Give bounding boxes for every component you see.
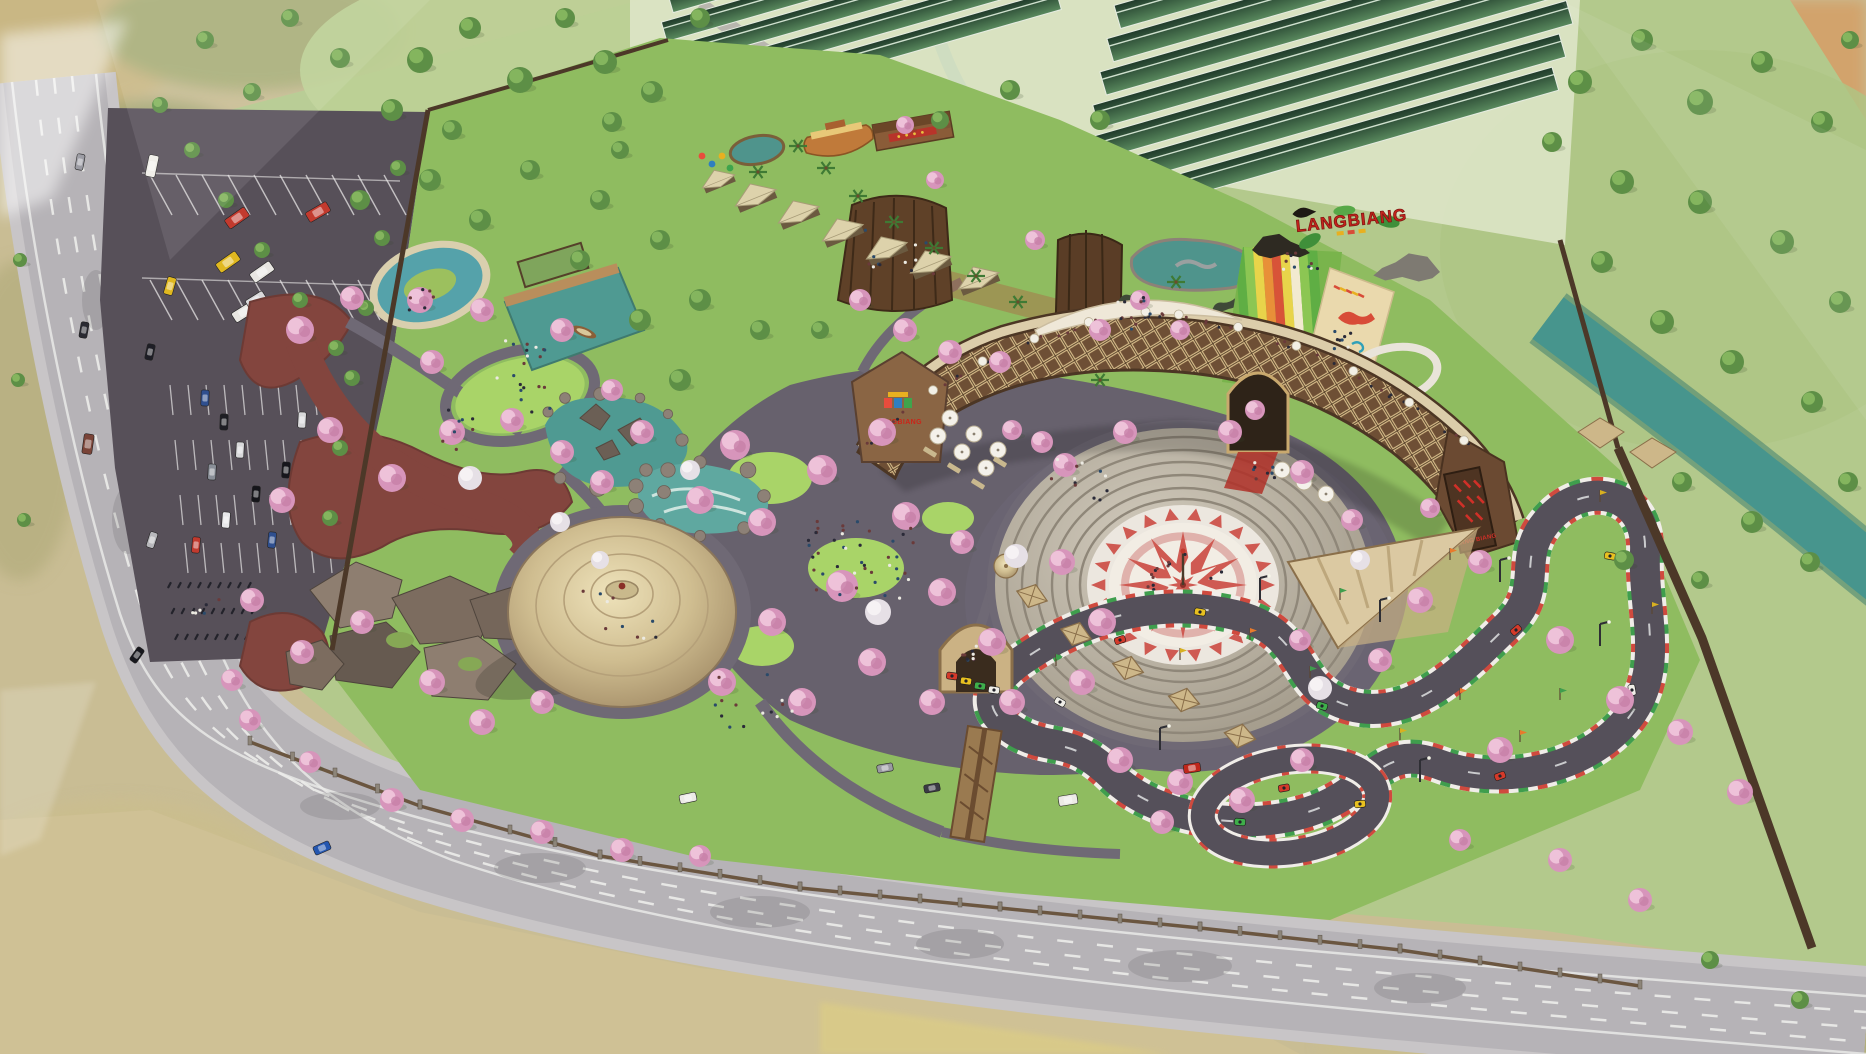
parked-car xyxy=(281,462,290,479)
white-umbrella xyxy=(942,410,958,426)
go-kart xyxy=(1354,800,1366,808)
parked-car xyxy=(251,486,260,503)
scene: LANGBIANG LANGBIANG LANG BIANG xyxy=(0,0,1866,1054)
parked-car xyxy=(236,442,245,458)
go-kart xyxy=(988,686,1000,694)
white-umbrella xyxy=(1318,486,1334,502)
parked-car xyxy=(220,414,229,430)
white-blossom-tree xyxy=(550,512,570,532)
thatch-roof xyxy=(508,517,736,707)
parked-car xyxy=(191,537,200,554)
go-kart xyxy=(1278,784,1290,793)
white-blossom-tree xyxy=(458,466,482,490)
go-kart xyxy=(1194,608,1206,617)
park-aerial-rendering: LANGBIANG LANGBIANG LANG BIANG xyxy=(0,0,1866,1054)
parked-car xyxy=(208,464,217,480)
go-kart xyxy=(1234,818,1246,826)
white-umbrella xyxy=(930,428,946,444)
parked-car xyxy=(221,512,230,529)
white-blossom-tree xyxy=(591,551,609,569)
go-kart xyxy=(960,677,972,685)
go-kart xyxy=(974,682,986,690)
roof-finial xyxy=(619,583,626,590)
white-blossom-tree xyxy=(1308,676,1332,700)
white-blossom-tree xyxy=(1004,544,1028,568)
go-kart xyxy=(946,672,958,680)
parked-car xyxy=(267,532,276,549)
white-umbrella xyxy=(966,426,982,442)
white-blossom-tree xyxy=(1350,550,1370,570)
white-blossom-tree xyxy=(680,460,700,480)
white-umbrella xyxy=(978,460,994,476)
white-umbrella xyxy=(1274,462,1290,478)
white-umbrella xyxy=(990,442,1006,458)
parked-car xyxy=(201,390,210,406)
white-umbrella xyxy=(954,444,970,460)
white-blossom-tree xyxy=(865,599,891,625)
parked-car xyxy=(298,412,307,428)
